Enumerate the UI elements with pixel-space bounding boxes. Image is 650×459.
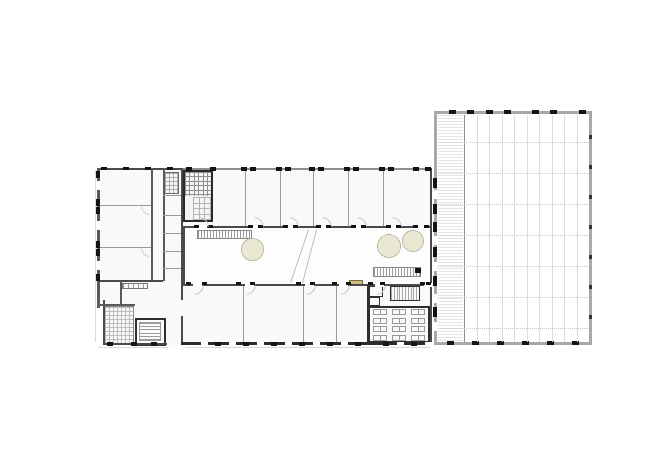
tree-icon bbox=[377, 234, 401, 258]
floor-plan-canvas bbox=[0, 0, 650, 459]
door-jamb bbox=[413, 225, 418, 229]
window-pier bbox=[96, 207, 100, 214]
partition bbox=[163, 195, 181, 196]
facade-line bbox=[98, 347, 168, 348]
beam-line bbox=[438, 297, 589, 298]
window-pier bbox=[210, 167, 216, 171]
grid-line bbox=[527, 115, 528, 342]
window-pier bbox=[241, 167, 247, 171]
door-jamb bbox=[186, 282, 191, 286]
terrace-hatch bbox=[104, 306, 134, 344]
window-pier bbox=[425, 167, 431, 171]
grid-line bbox=[564, 115, 565, 342]
window-pier bbox=[131, 342, 137, 346]
wc-cells-hatch bbox=[185, 172, 211, 196]
desk-divider bbox=[380, 318, 381, 324]
window-opening bbox=[96, 181, 102, 190]
floor-plan bbox=[0, 0, 650, 459]
grid-line bbox=[477, 115, 478, 342]
window-pier bbox=[96, 241, 100, 248]
window-pier bbox=[186, 167, 192, 171]
door-jamb bbox=[424, 225, 429, 229]
desk-divider bbox=[380, 309, 381, 315]
door-opening bbox=[433, 190, 438, 199]
window-opening bbox=[257, 342, 264, 347]
window-opening bbox=[96, 221, 102, 230]
window-pier bbox=[215, 342, 221, 347]
partition bbox=[383, 170, 384, 226]
column-mark bbox=[572, 341, 579, 345]
grid-line bbox=[552, 115, 553, 342]
partition bbox=[163, 215, 181, 216]
desk-divider bbox=[399, 335, 400, 341]
column-mark bbox=[589, 315, 592, 319]
column-mark bbox=[589, 255, 592, 259]
window-pier bbox=[96, 274, 100, 281]
partition bbox=[348, 170, 349, 226]
window-pier bbox=[271, 342, 277, 347]
partition bbox=[336, 286, 337, 343]
south-sill-line bbox=[185, 347, 430, 348]
window-pier bbox=[151, 342, 157, 346]
window-pier bbox=[355, 342, 361, 347]
grid-line bbox=[577, 115, 578, 342]
column-mark bbox=[472, 341, 479, 345]
window-pier bbox=[167, 167, 173, 171]
door-jamb bbox=[426, 282, 431, 286]
desk-divider bbox=[418, 326, 419, 332]
window-pier bbox=[96, 199, 100, 206]
window-pier bbox=[96, 249, 100, 256]
partition bbox=[163, 251, 181, 252]
window-pier bbox=[250, 167, 256, 171]
door-jamb bbox=[248, 225, 253, 229]
wc-room-left-wing bbox=[164, 172, 179, 194]
column-mark bbox=[589, 195, 592, 199]
window-pier bbox=[101, 167, 107, 171]
beam-line bbox=[438, 142, 589, 143]
column-mark bbox=[589, 285, 592, 289]
beam-line bbox=[438, 266, 589, 267]
column-mark bbox=[447, 341, 454, 345]
grid-line bbox=[514, 115, 515, 342]
bottom-wing-thick-wall bbox=[367, 285, 370, 343]
column-mark bbox=[589, 225, 592, 229]
kitchen-fixtures bbox=[122, 283, 148, 289]
window-pier bbox=[344, 167, 350, 171]
tree-icon bbox=[241, 238, 264, 261]
partition bbox=[313, 170, 314, 226]
window-pier bbox=[96, 171, 100, 178]
window-pier bbox=[413, 167, 419, 171]
window-pier bbox=[309, 167, 315, 171]
window-pier bbox=[353, 167, 359, 171]
door-jamb bbox=[332, 282, 337, 286]
window-pier bbox=[379, 167, 385, 171]
column-mark bbox=[550, 110, 557, 114]
tree-icon bbox=[402, 230, 424, 252]
window-pier bbox=[411, 342, 417, 347]
kitchen-south-wall bbox=[98, 304, 135, 306]
wall-segment bbox=[433, 204, 437, 214]
window-pier bbox=[388, 167, 394, 171]
door-opening bbox=[433, 236, 438, 245]
beam-line bbox=[438, 235, 589, 236]
corner-mark bbox=[415, 268, 421, 273]
wall-segment bbox=[433, 307, 437, 317]
column-mark bbox=[449, 110, 456, 114]
facade-line bbox=[95, 170, 96, 342]
window-opening bbox=[201, 342, 208, 347]
grid-line bbox=[489, 115, 490, 342]
window-pier bbox=[107, 342, 113, 346]
column-mark bbox=[589, 135, 592, 139]
hall-walkway-edge bbox=[464, 115, 465, 342]
stair-south-east bbox=[390, 286, 420, 301]
desk-divider bbox=[418, 318, 419, 324]
window-pier bbox=[318, 167, 324, 171]
courtyard-stair-south bbox=[373, 267, 421, 277]
desk-divider bbox=[399, 309, 400, 315]
left-wing-mid-wall bbox=[98, 280, 163, 282]
desk-divider bbox=[399, 326, 400, 332]
door-jamb bbox=[236, 282, 241, 286]
window-pier bbox=[299, 342, 305, 347]
left-wing-west-wall-lower bbox=[103, 300, 105, 345]
beam-line bbox=[438, 328, 589, 329]
window-opening bbox=[397, 342, 404, 347]
desk-divider bbox=[380, 335, 381, 341]
window-pier bbox=[383, 342, 389, 347]
column-mark bbox=[467, 110, 474, 114]
courtyard-west-wall bbox=[183, 228, 185, 285]
window-pier bbox=[243, 342, 249, 347]
window-opening bbox=[285, 342, 292, 347]
partition bbox=[163, 268, 181, 269]
window-opening bbox=[229, 342, 236, 347]
door-jamb bbox=[420, 282, 425, 286]
column-mark bbox=[579, 110, 586, 114]
wall-segment bbox=[433, 276, 437, 286]
partition bbox=[280, 170, 281, 226]
window-opening bbox=[313, 342, 320, 347]
desk-divider bbox=[380, 326, 381, 332]
stair-treads bbox=[139, 322, 161, 341]
wall-segment bbox=[433, 178, 437, 188]
partition bbox=[163, 233, 181, 234]
partition bbox=[245, 170, 246, 226]
window-pier bbox=[276, 167, 282, 171]
hall-walkway bbox=[438, 115, 463, 341]
column-mark bbox=[486, 110, 493, 114]
window-opening bbox=[425, 342, 432, 347]
grid-line bbox=[502, 115, 503, 342]
door-opening bbox=[433, 322, 438, 331]
passage-opening bbox=[180, 300, 185, 316]
window-opening bbox=[96, 261, 102, 270]
column-mark bbox=[504, 110, 511, 114]
desk-divider bbox=[399, 318, 400, 324]
door-jamb bbox=[368, 282, 373, 286]
column-mark bbox=[589, 165, 592, 169]
partition bbox=[243, 286, 244, 343]
door-jamb bbox=[296, 282, 301, 286]
kitchen-wall bbox=[120, 281, 122, 305]
column-mark bbox=[497, 341, 504, 345]
door-jamb bbox=[283, 225, 288, 229]
window-pier bbox=[285, 167, 291, 171]
column-mark bbox=[547, 341, 554, 345]
courtyard-stair-north bbox=[197, 230, 252, 239]
column-mark bbox=[532, 110, 539, 114]
grid-line bbox=[539, 115, 540, 342]
small-room-b bbox=[369, 297, 380, 306]
window-opening bbox=[341, 342, 348, 347]
desk-divider bbox=[418, 309, 419, 315]
wall-segment bbox=[433, 222, 437, 232]
beam-line bbox=[438, 173, 589, 174]
column-mark bbox=[522, 341, 529, 345]
door-jamb bbox=[351, 225, 356, 229]
partition bbox=[303, 286, 304, 343]
beam-line bbox=[438, 204, 589, 205]
door-jamb bbox=[316, 225, 321, 229]
window-pier bbox=[123, 167, 129, 171]
wall-segment bbox=[433, 247, 437, 257]
corridor-wall-east bbox=[163, 168, 165, 281]
corridor-wall-west bbox=[151, 168, 153, 281]
door-jamb bbox=[386, 225, 391, 229]
desk-divider bbox=[418, 335, 419, 341]
window-pier bbox=[145, 167, 151, 171]
window-pier bbox=[327, 342, 333, 347]
top-wing-north-wall bbox=[181, 168, 432, 170]
door-opening bbox=[433, 294, 438, 303]
